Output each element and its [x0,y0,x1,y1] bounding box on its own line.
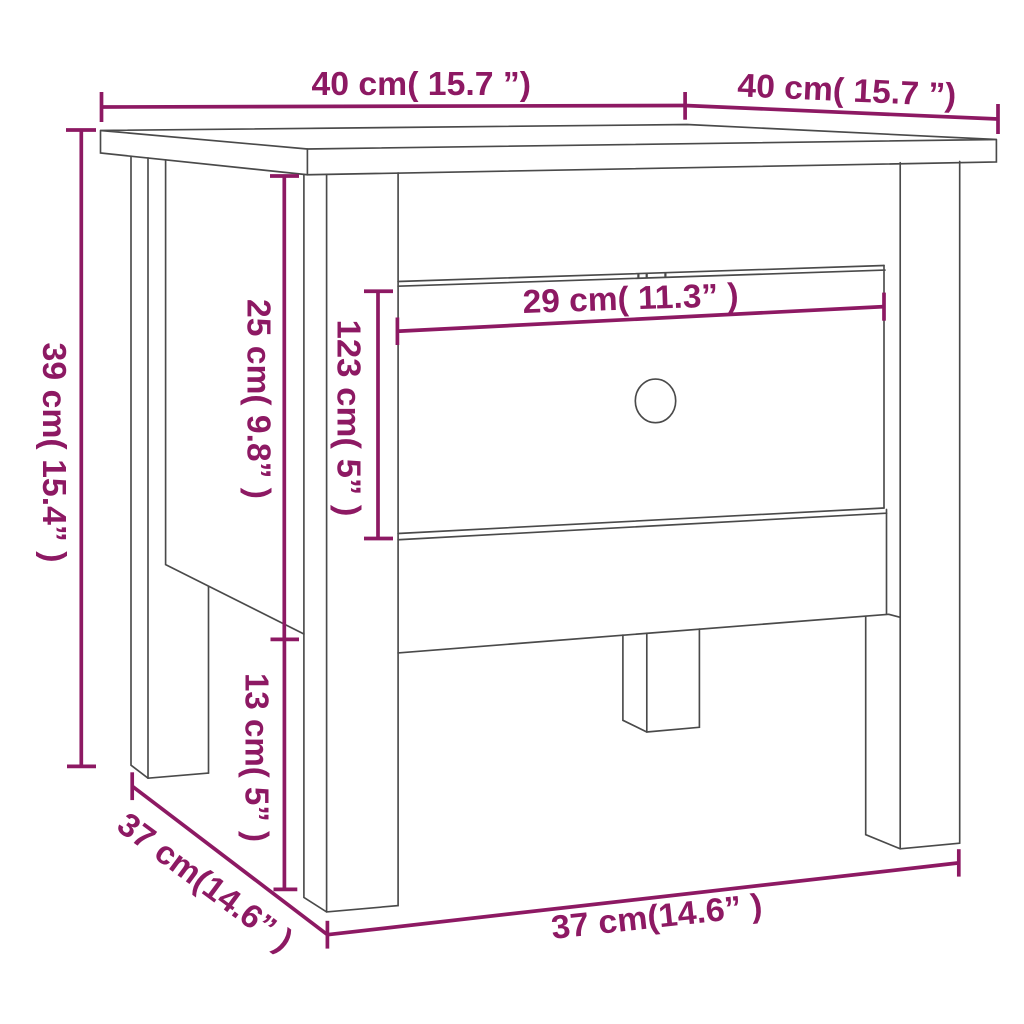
svg-text:123 cm( 5” ): 123 cm( 5” ) [331,320,368,517]
svg-text:40 cm( 15.7 ”): 40 cm( 15.7 ”) [312,65,532,102]
svg-text:13 cm( 5” ): 13 cm( 5” ) [239,673,276,842]
svg-text:29 cm( 11.3” ): 29 cm( 11.3” ) [522,276,739,320]
svg-text:25 cm( 9.8” ): 25 cm( 9.8” ) [241,299,278,499]
svg-text:39 cm( 15.4” ): 39 cm( 15.4” ) [36,343,73,563]
